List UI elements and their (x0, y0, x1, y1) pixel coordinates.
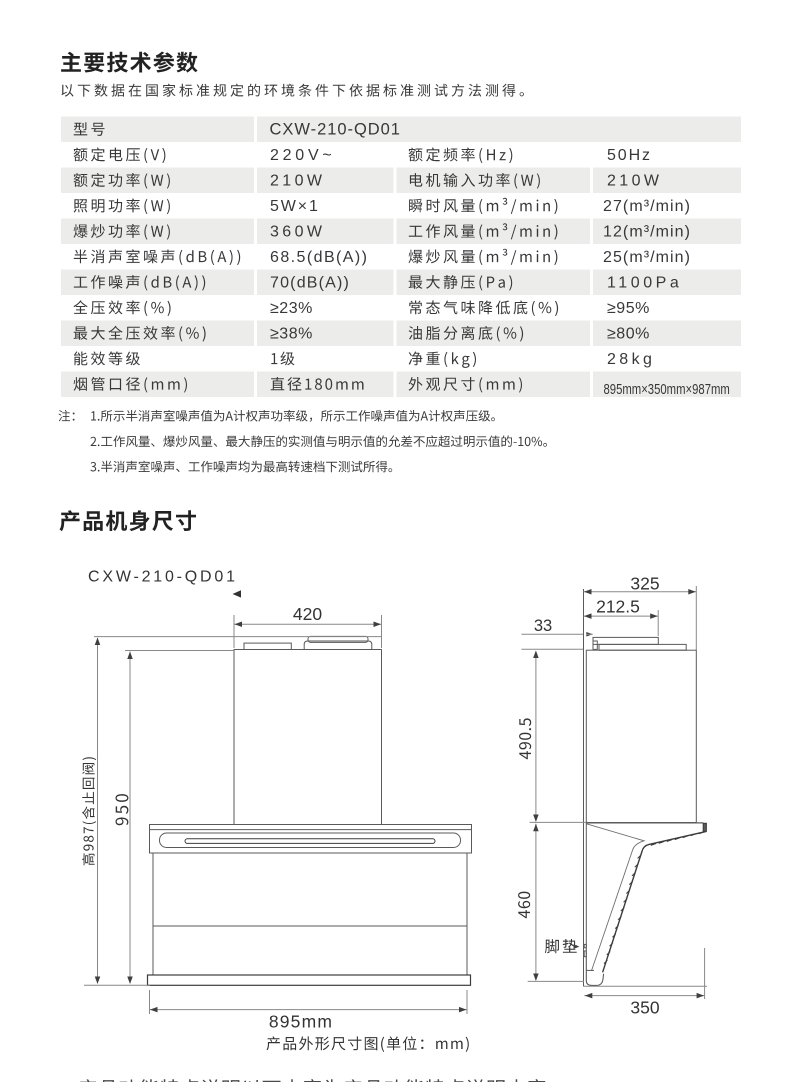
svg-text:350: 350 (630, 998, 659, 1018)
svg-text:360W: 360W (270, 224, 325, 241)
svg-text:1100Pa: 1100Pa (607, 275, 682, 292)
svg-text:895mm: 895mm (269, 1012, 333, 1032)
svg-text:325: 325 (630, 574, 659, 594)
svg-text:210W: 210W (607, 173, 662, 190)
svg-text:68.5(dB(A)): 68.5(dB(A)) (270, 249, 368, 266)
svg-text:≥95%: ≥95% (607, 300, 650, 317)
svg-text:12(m³/min): 12(m³/min) (603, 224, 691, 241)
svg-text:27(m³/min): 27(m³/min) (603, 198, 691, 215)
svg-text:210W: 210W (270, 173, 325, 190)
svg-text:50Hz: 50Hz (607, 147, 652, 164)
svg-text:CXW-210-QD01: CXW-210-QD01 (88, 569, 238, 586)
svg-text:5W×1: 5W×1 (270, 198, 320, 215)
svg-text:895mm×350mm×987mm: 895mm×350mm×987mm (604, 381, 730, 398)
svg-text:CXW-210-QD01: CXW-210-QD01 (270, 121, 401, 139)
svg-text:≥38%: ≥38% (270, 326, 313, 343)
svg-text:28kg: 28kg (607, 351, 655, 368)
svg-text:≥80%: ≥80% (607, 326, 650, 343)
svg-text:420: 420 (293, 604, 322, 624)
svg-text:25(m³/min): 25(m³/min) (603, 249, 691, 266)
svg-text:70(dB(A)): 70(dB(A)) (270, 275, 350, 292)
svg-text:220V~: 220V~ (270, 147, 335, 164)
svg-text:33: 33 (534, 617, 552, 635)
svg-text:212.5: 212.5 (596, 597, 640, 617)
svg-text:≥23%: ≥23% (270, 300, 313, 317)
